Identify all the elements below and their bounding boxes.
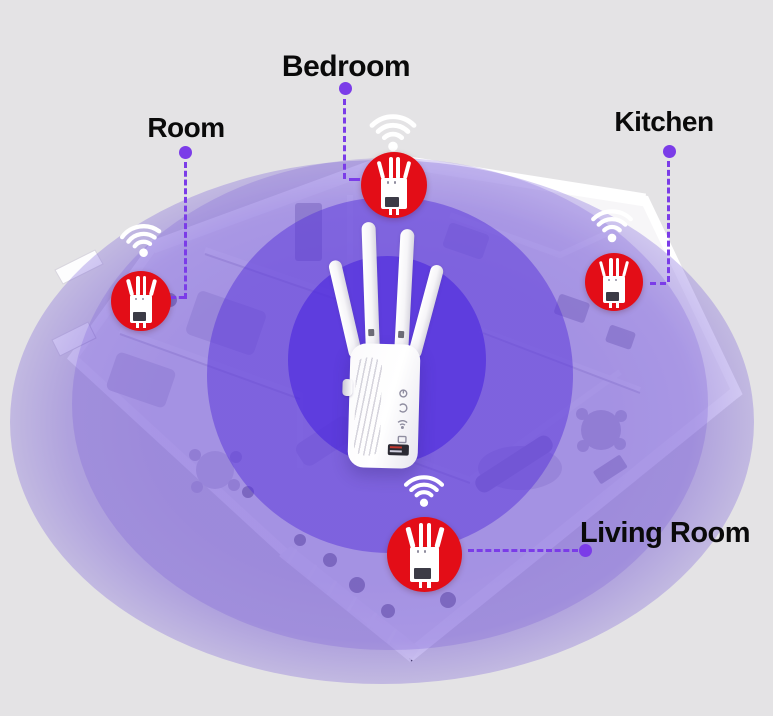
badge-repeater-label [606,292,619,301]
badge-plug-pin [136,323,139,328]
wifi-extender-badge-room [111,271,171,331]
badge-antenna [616,258,619,277]
wifi-signal-icon-bedroom [365,104,421,152]
badge-antenna [126,279,134,296]
badge-repeater-label [133,312,146,321]
badge-repeater-body [130,295,153,323]
badge-antenna [599,260,607,277]
badge-antenna [419,523,424,548]
repeater-side-button [342,379,352,396]
repeater-led-icons [396,388,410,446]
badge-antenna [389,157,393,179]
callout-dot-bedroom [339,82,352,95]
callout-line-room [184,162,187,299]
label-room: Room [147,112,224,144]
label-kitchen: Kitchen [614,106,713,138]
callout-line-kitchen [667,161,670,282]
repeater-body [347,343,420,469]
badge-repeater-body [381,178,406,208]
badge-repeater-body [603,276,625,303]
callout-dot-room [179,146,192,159]
badge-antenna [377,160,386,179]
callout-line-room-tail [171,296,184,299]
badge-plug-pin [419,582,423,589]
wifi-extender-badge-bedroom [361,152,427,218]
label-living-room: Living Room [580,517,750,550]
callout-line-bedroom-tail [349,178,360,181]
callout-line-living-room [468,549,578,552]
coverage-diagram: Bedroom Room Kitchen Living Room [0,0,773,716]
label-bedroom: Bedroom [282,50,410,84]
callout-line-bedroom [343,99,346,179]
badge-antenna [396,157,400,179]
badge-antenna [405,527,415,548]
badge-antenna [435,527,445,548]
badge-repeater-label [385,197,400,207]
badge-antenna [136,276,140,296]
callout-dot-kitchen [663,145,676,158]
wifi-signal-icon-kitchen [587,200,637,243]
badge-antenna [427,523,432,548]
badge-plug-pin [609,303,612,308]
badge-plug-pin [143,323,146,328]
badge-plug-pin [396,209,399,215]
badge-repeater-label [414,568,431,580]
badge-antenna [143,276,147,296]
badge-antenna [403,160,412,179]
badge-repeater-body [410,547,439,582]
badge-antenna [149,279,157,296]
callout-dot-living-room [579,544,592,557]
wifi-extender-badge-kitchen [585,253,643,311]
badge-antenna [609,258,612,277]
badge-plug-pin [427,582,431,589]
brand-label [388,444,409,456]
badge-plug-pin [616,303,619,308]
wifi-signal-icon-room [113,211,169,261]
wifi-extender-badge-living-room [387,517,462,592]
wifi-signal-icon-living-room [400,466,448,508]
callout-line-kitchen-tail [650,282,666,285]
badge-antenna [622,260,630,277]
badge-plug-pin [389,209,392,215]
repeater-vents [354,357,383,456]
